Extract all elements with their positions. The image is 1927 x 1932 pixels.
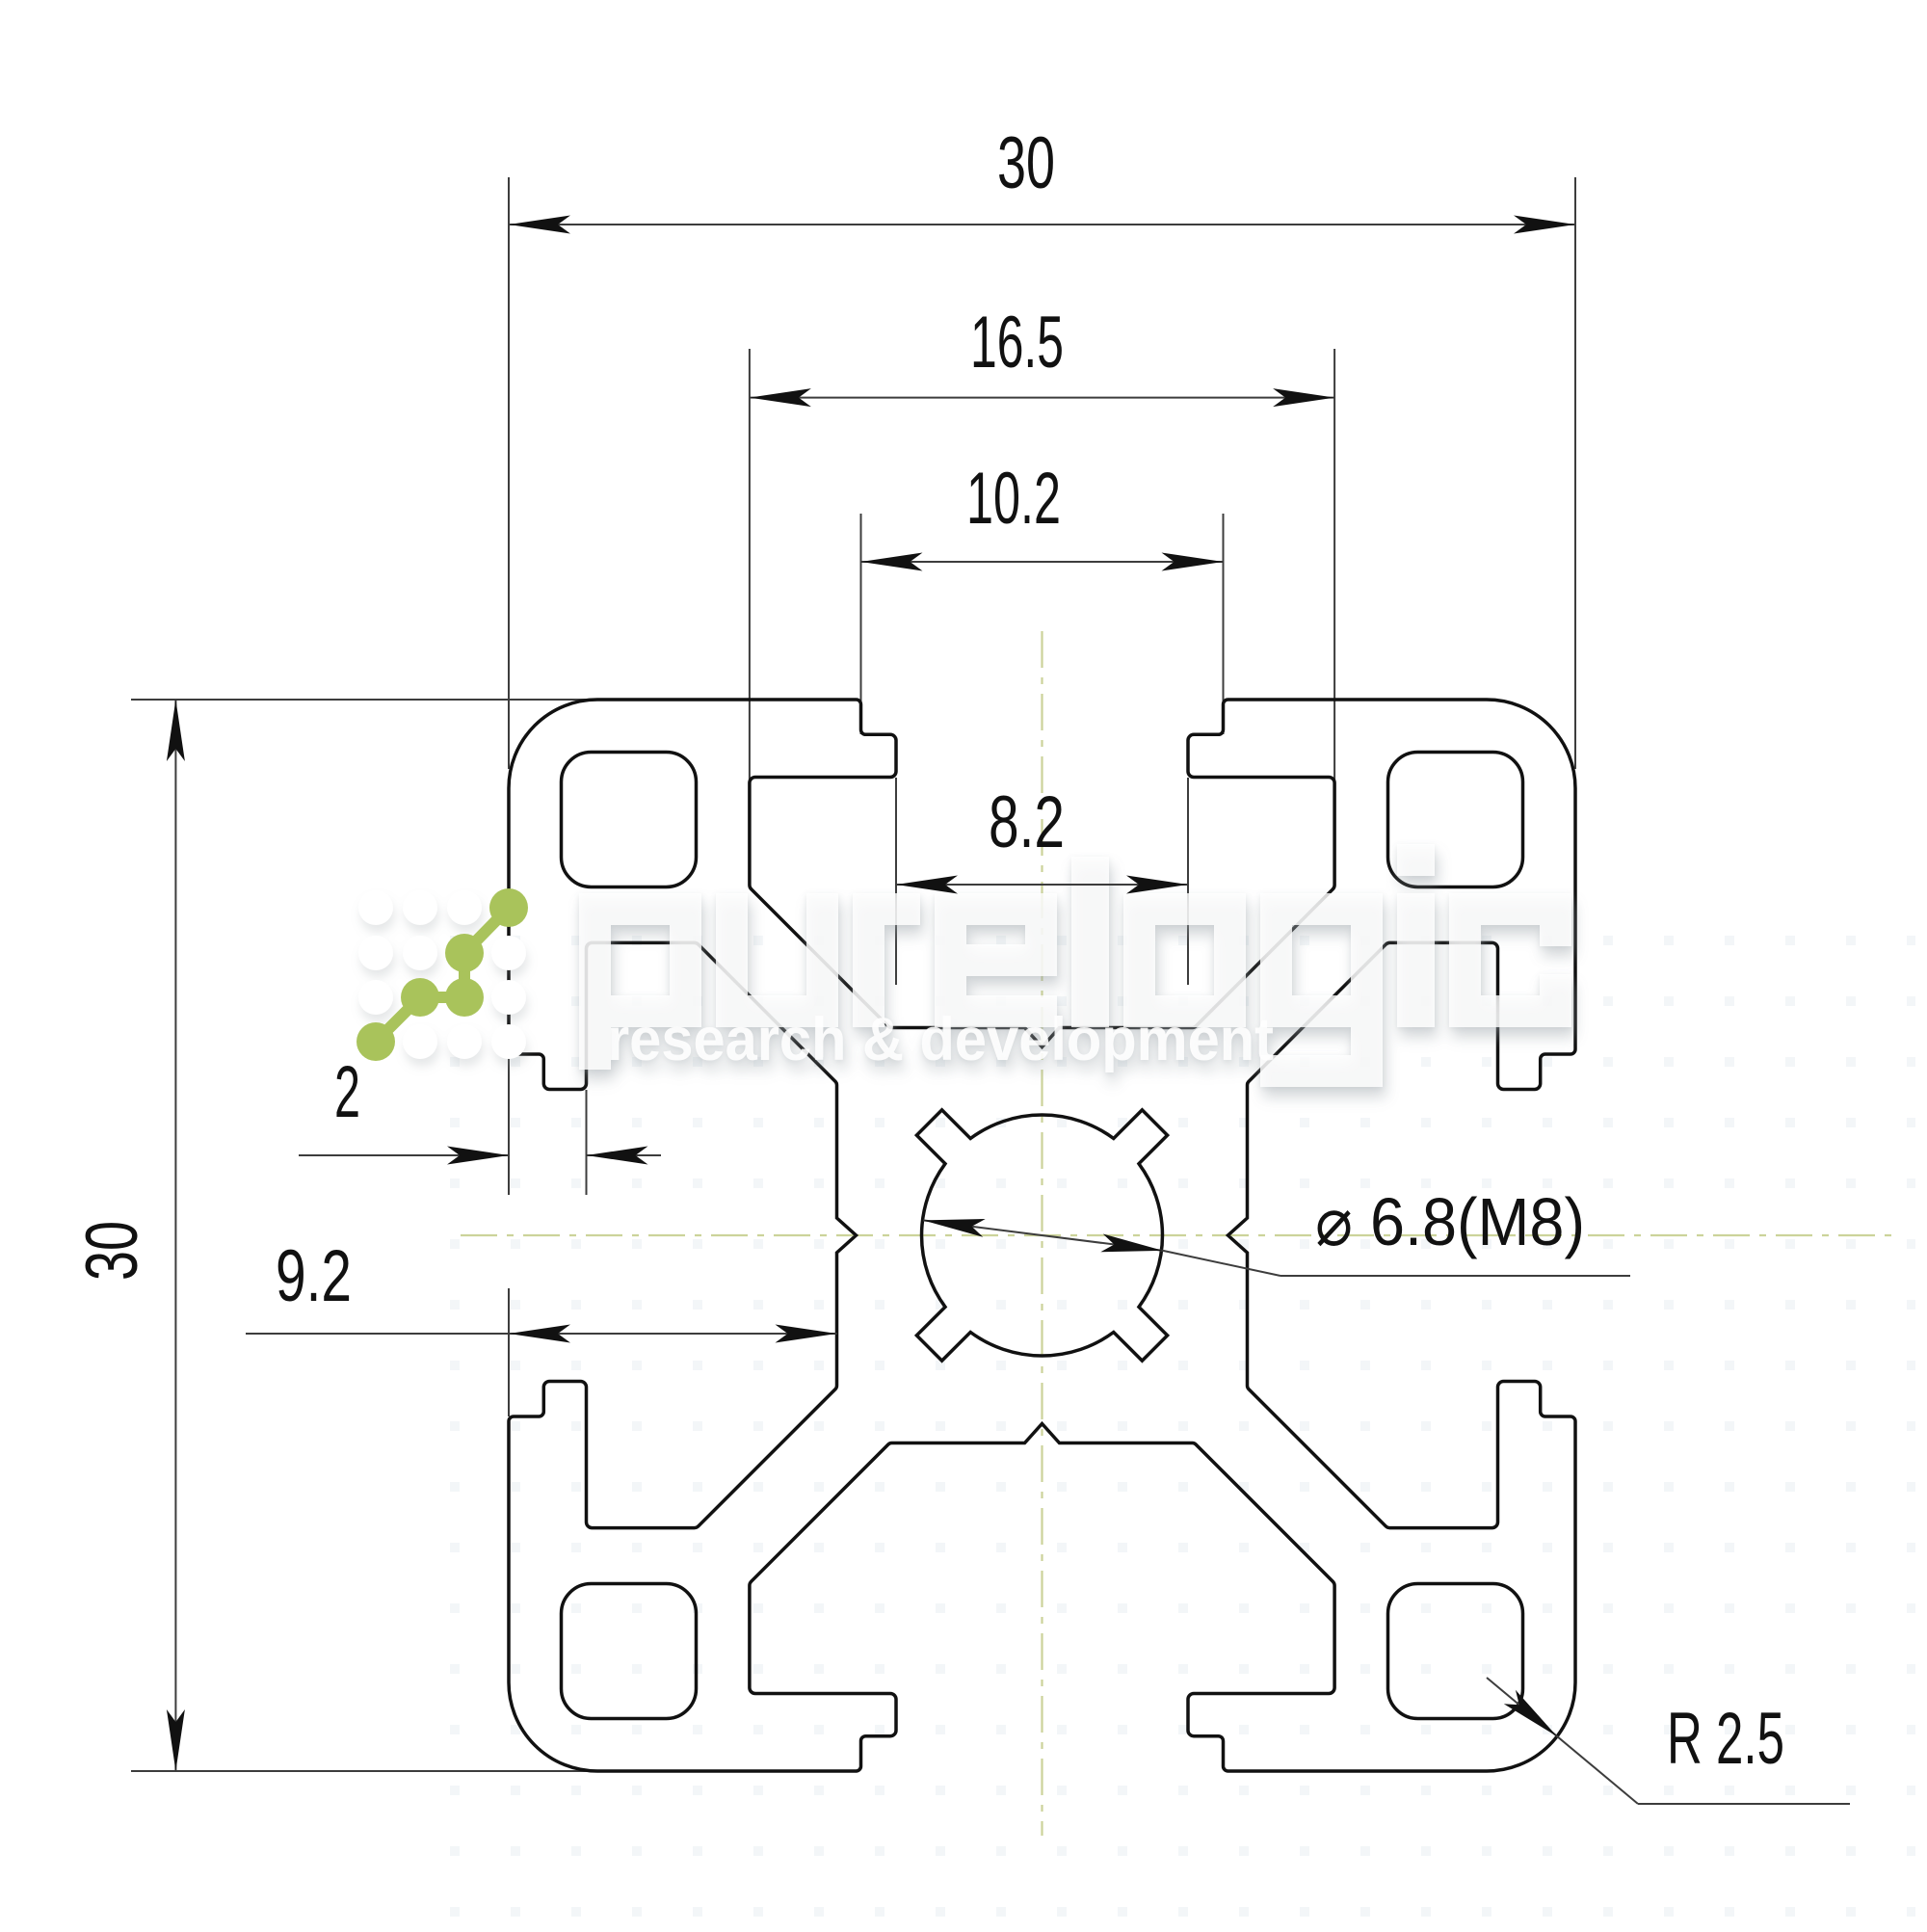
svg-text:research & development: research & development bbox=[607, 1006, 1274, 1073]
svg-text:10.2: 10.2 bbox=[966, 458, 1061, 540]
svg-text:9.2: 9.2 bbox=[276, 1235, 352, 1317]
svg-text:30: 30 bbox=[71, 1221, 153, 1281]
svg-text:R 2.5: R 2.5 bbox=[1667, 1698, 1784, 1780]
svg-text:30: 30 bbox=[997, 122, 1055, 204]
svg-text:16.5: 16.5 bbox=[970, 302, 1064, 384]
svg-text:8.2: 8.2 bbox=[989, 781, 1065, 863]
svg-text:2: 2 bbox=[334, 1051, 360, 1133]
svg-text:⌀ 6.8(M8): ⌀ 6.8(M8) bbox=[1315, 1184, 1585, 1259]
